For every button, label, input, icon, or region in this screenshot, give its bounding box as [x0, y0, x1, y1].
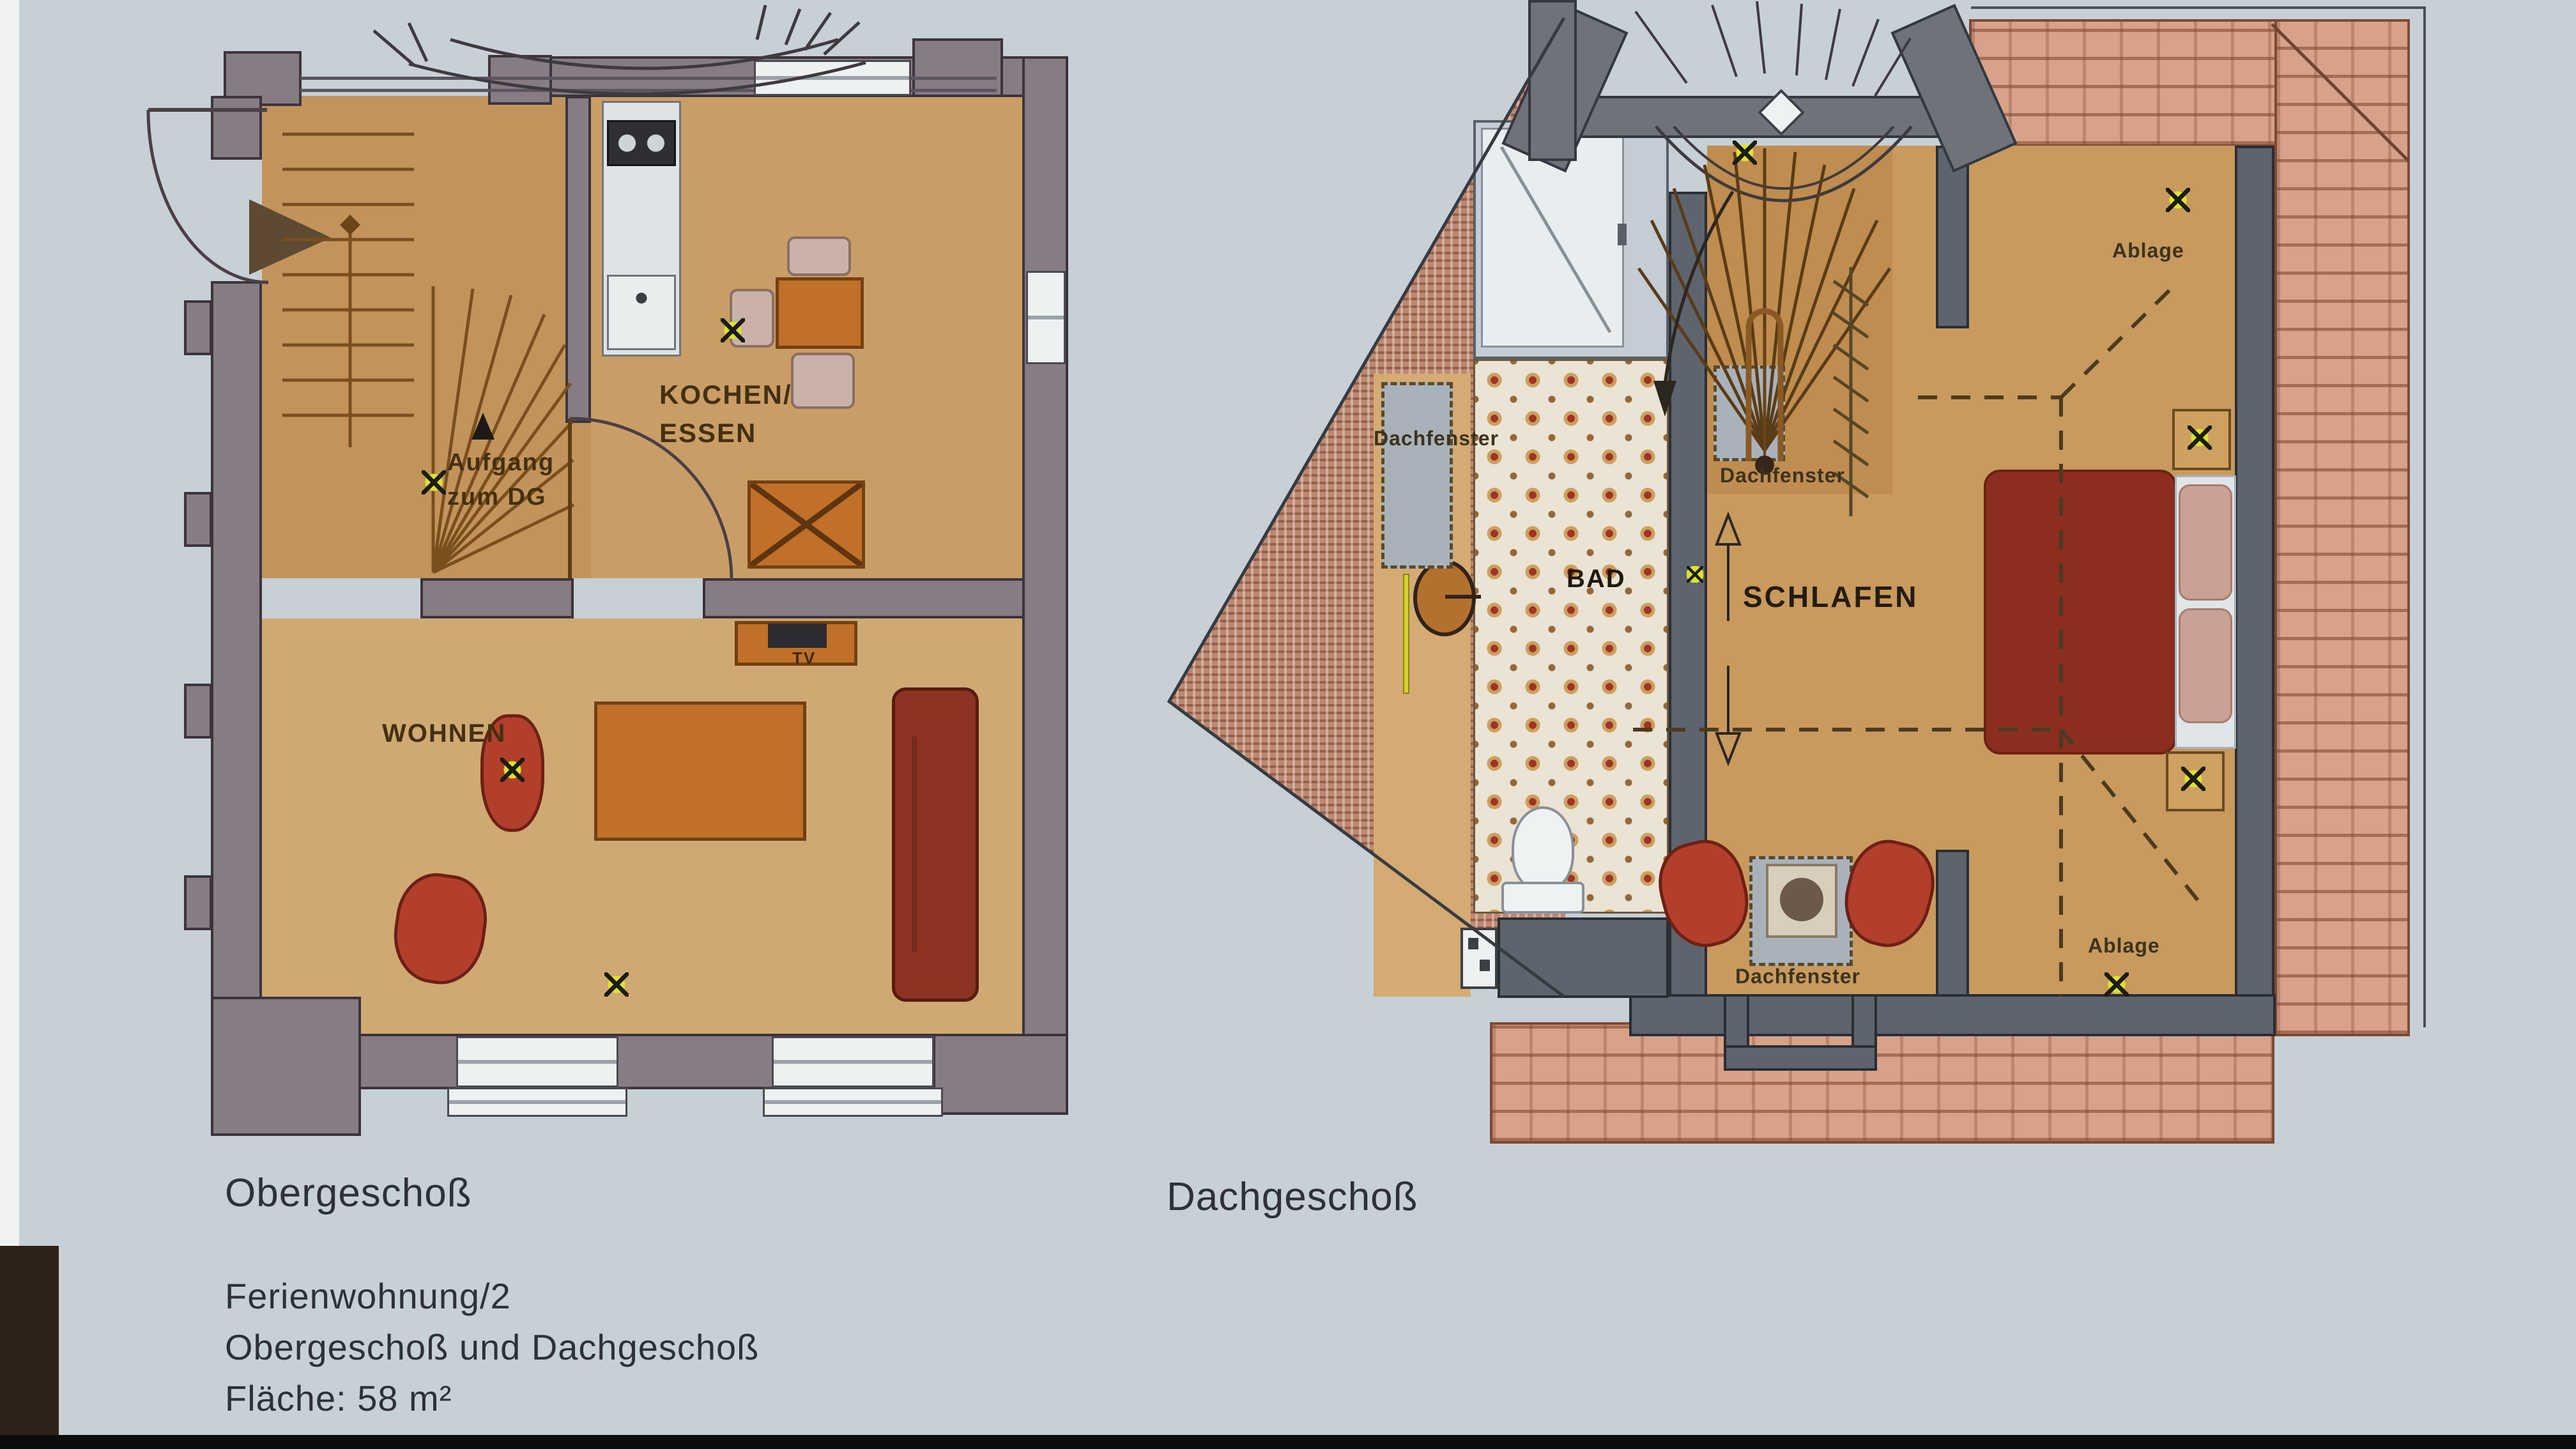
- light-point-marker-icon: [422, 470, 446, 494]
- footer-unit: Ferienwohnung/2: [225, 1275, 511, 1317]
- shower-handle: [1618, 224, 1627, 245]
- roof-right: [2274, 19, 2410, 1036]
- room-label-bedroom: SCHLAFEN: [1743, 576, 1918, 618]
- light-point-marker-icon: [604, 972, 629, 997]
- floor-plan-sheet: KOCHEN/ ESSEN Aufgang zum DG WOHNEN TV B…: [0, 0, 2576, 1449]
- gable-chunk: [1528, 0, 1577, 161]
- light-point-marker-icon: [2188, 425, 2212, 450]
- roof-window: [1381, 382, 1453, 569]
- washbasin: [1413, 560, 1476, 636]
- bed-pillow: [2179, 608, 2232, 723]
- bed-pillow: [2179, 484, 2232, 601]
- light-point-marker-icon: [1733, 141, 1757, 165]
- light-point-marker-icon: [1687, 566, 1703, 583]
- utility-box: [1460, 928, 1498, 989]
- toilet-tank: [1501, 882, 1584, 914]
- toilet-bowl: [1512, 806, 1574, 891]
- storage-label: Ablage: [2112, 239, 2184, 263]
- roof-window-label: Dachfenster: [1735, 965, 1860, 988]
- wall-corner-bath: [1498, 917, 1669, 998]
- utility-box-mark: [1468, 938, 1478, 949]
- room-label-kitchen: KOCHEN/ ESSEN: [659, 376, 792, 452]
- light-point-marker-icon: [2181, 767, 2205, 791]
- light-point-marker-icon: [2104, 972, 2129, 997]
- utility-box-mark: [1480, 960, 1490, 971]
- wall-bedroom-right: [2235, 146, 2274, 998]
- roof-window-label: Dachfenster: [1374, 427, 1499, 450]
- footer-area: Fläche: 58 m²: [225, 1377, 452, 1419]
- roof-window: [1713, 365, 1785, 461]
- wall-stub-north: [1936, 146, 1969, 328]
- roof-window-label: Dachfenster: [1720, 464, 1845, 487]
- tv-label: TV: [792, 647, 816, 670]
- bed-blanket: [1984, 470, 2177, 755]
- wall-stub-south: [1936, 850, 1969, 997]
- roof-bottom: [1490, 1022, 2274, 1144]
- room-label-bath: BAD: [1567, 561, 1626, 597]
- room-label-living: WOHNEN: [382, 716, 506, 752]
- storage-label: Ablage: [2088, 934, 2160, 958]
- room-label-stair: Aufgang zum DG: [447, 446, 555, 515]
- light-point-marker-icon: [721, 318, 745, 342]
- footer-floors: Obergeschoß und Dachgeschoß: [225, 1326, 759, 1368]
- light-point-marker-icon: [2166, 188, 2190, 212]
- caption-dachgeschoss: Dachgeschoß: [1167, 1174, 1418, 1220]
- side-table-top: [1780, 878, 1823, 921]
- dormer-niche-sill: [1724, 1045, 1877, 1071]
- light-point-marker-icon: [500, 758, 525, 782]
- caption-obergeschoss: Obergeschoß: [225, 1170, 472, 1216]
- towel-rail: [1403, 574, 1409, 694]
